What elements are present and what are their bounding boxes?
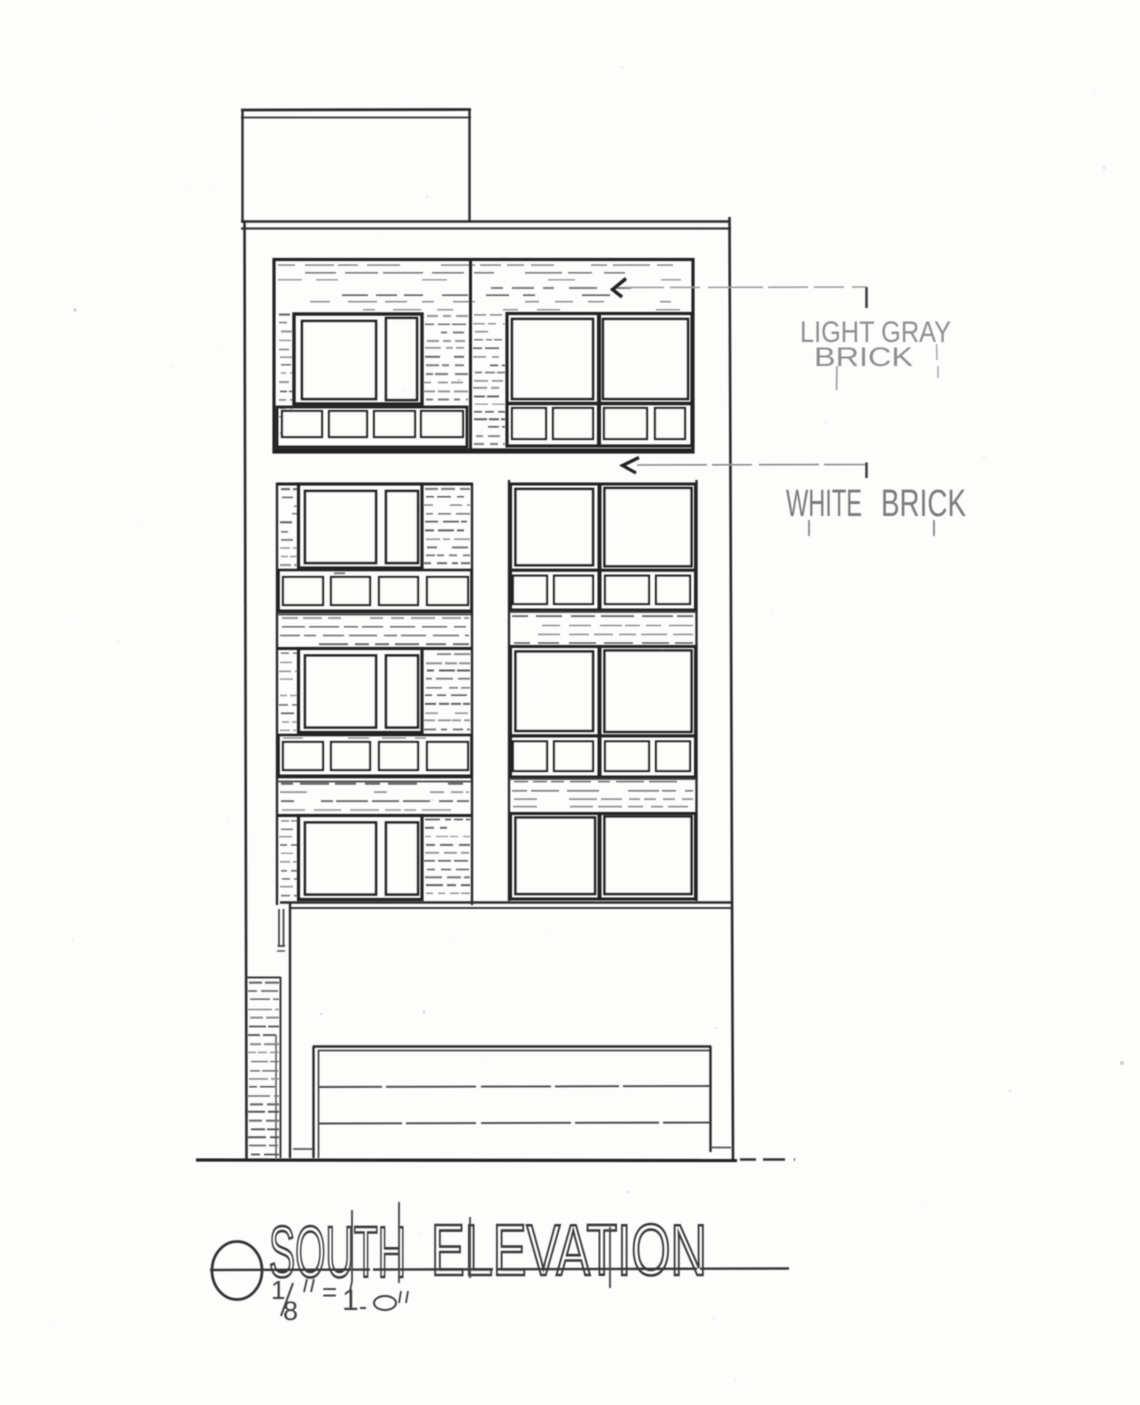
svg-text:ELEVATION: ELEVATION: [431, 1211, 707, 1291]
svg-text:8: 8: [283, 1296, 298, 1326]
svg-text:BRICK: BRICK: [881, 483, 966, 525]
svg-text:=: =: [322, 1277, 337, 1307]
svg-text:WHITE: WHITE: [786, 483, 862, 525]
svg-text:BRICK: BRICK: [814, 342, 913, 372]
svg-text:SOUTH: SOUTH: [269, 1213, 406, 1293]
